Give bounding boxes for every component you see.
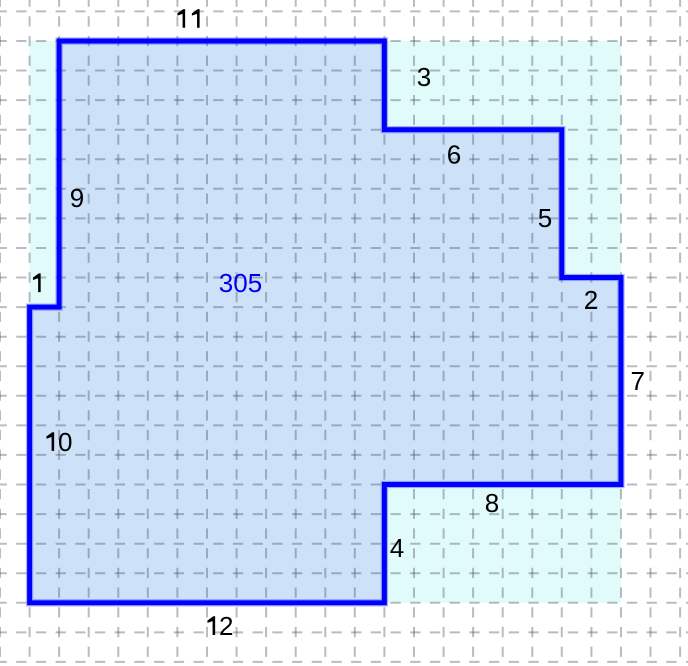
svg-text:2: 2 — [219, 611, 233, 641]
svg-text:2: 2 — [584, 285, 598, 315]
svg-text:3: 3 — [417, 62, 431, 92]
svg-text:6: 6 — [447, 139, 461, 169]
svg-text:9: 9 — [70, 183, 84, 213]
svg-text:0: 0 — [58, 427, 72, 457]
svg-text:305: 305 — [219, 268, 262, 298]
svg-text:8: 8 — [485, 488, 499, 518]
svg-text:7: 7 — [630, 366, 644, 396]
svg-text:4: 4 — [390, 533, 404, 563]
svg-text:5: 5 — [538, 203, 552, 233]
